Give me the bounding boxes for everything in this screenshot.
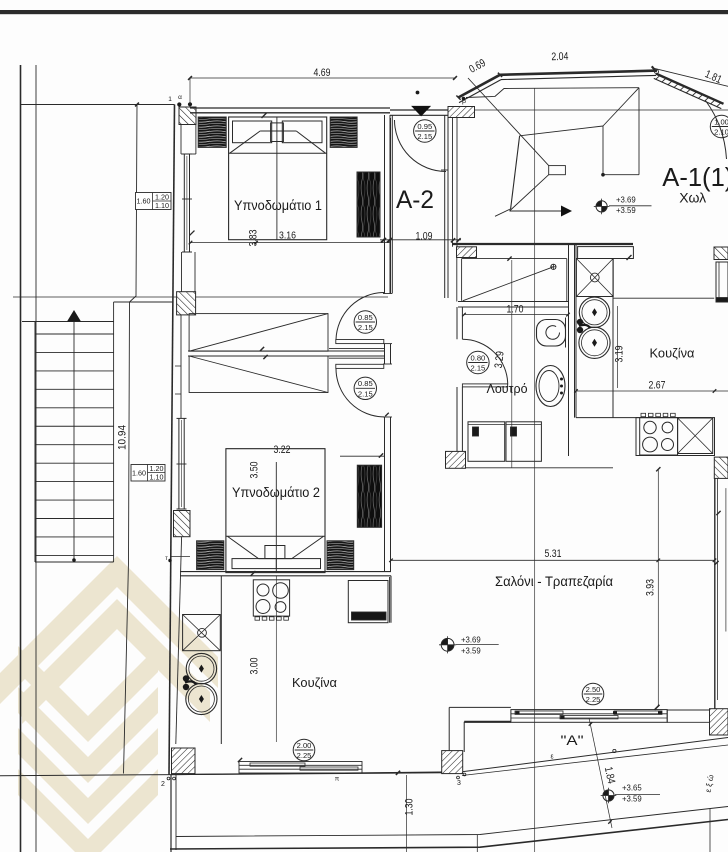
svg-text:3.19: 3.19 <box>614 346 626 363</box>
svg-text:1.09: 1.09 <box>416 231 433 243</box>
svg-text:3.50: 3.50 <box>249 462 261 479</box>
svg-text:+3.65: +3.65 <box>622 784 642 793</box>
svg-text:+3.69: +3.69 <box>616 196 636 205</box>
svg-text:1.10: 1.10 <box>155 201 169 210</box>
svg-text:3.93: 3.93 <box>645 579 657 596</box>
svg-text:α: α <box>178 94 182 101</box>
svg-text:3.22: 3.22 <box>274 444 291 456</box>
svg-text:1.60: 1.60 <box>137 197 151 206</box>
svg-text:+3.59: +3.59 <box>461 647 481 656</box>
svg-text:2.15: 2.15 <box>358 389 373 398</box>
svg-text:1.60: 1.60 <box>132 469 146 478</box>
svg-text:ε: ε <box>550 754 553 761</box>
svg-text:т: т <box>165 556 168 562</box>
svg-text:0.95: 0.95 <box>417 122 432 131</box>
svg-text:"A": "A" <box>561 733 584 748</box>
svg-text:2.50: 2.50 <box>586 685 601 694</box>
svg-text:Υπνοδωμάτιο 1: Υπνοδωμάτιο 1 <box>234 198 322 213</box>
svg-text:3: 3 <box>457 780 461 787</box>
svg-text:+3.69: +3.69 <box>461 636 481 645</box>
svg-text:0.85: 0.85 <box>358 379 373 388</box>
svg-text:Χωλ: Χωλ <box>679 189 706 205</box>
svg-text:2.25: 2.25 <box>297 751 312 760</box>
svg-text:1.70: 1.70 <box>507 304 524 316</box>
svg-text:2.67: 2.67 <box>649 380 666 392</box>
svg-text:1.00: 1.00 <box>714 117 728 126</box>
svg-text:2: 2 <box>161 781 165 788</box>
svg-text:Σαλόνι - Τραπεζαρία: Σαλόνι - Τραπεζαρία <box>495 574 613 589</box>
svg-text:2.00: 2.00 <box>297 741 312 750</box>
svg-text:2.15: 2.15 <box>471 364 486 373</box>
svg-text:0.80: 0.80 <box>471 353 486 362</box>
svg-text:+3.59: +3.59 <box>622 794 642 803</box>
svg-text:1.30: 1.30 <box>404 799 416 816</box>
svg-text:3.83: 3.83 <box>248 230 260 247</box>
svg-text:5.31: 5.31 <box>545 548 562 560</box>
svg-text:+3.59: +3.59 <box>616 206 636 215</box>
svg-text:1: 1 <box>168 96 172 103</box>
svg-text:2.04: 2.04 <box>551 51 568 64</box>
svg-text:1.10: 1.10 <box>150 473 164 482</box>
svg-text:2.15: 2.15 <box>417 132 432 141</box>
svg-text:Λουτρό: Λουτρό <box>487 381 528 396</box>
svg-text:2.10: 2.10 <box>714 128 728 137</box>
svg-text:0.85: 0.85 <box>358 313 373 322</box>
svg-text:3.16: 3.16 <box>279 230 296 242</box>
svg-text:Κουζίνα: Κουζίνα <box>650 346 696 361</box>
svg-text:A-2: A-2 <box>396 186 434 214</box>
svg-text:π: π <box>335 776 340 783</box>
svg-text:3.29: 3.29 <box>493 351 507 369</box>
svg-text:2.25: 2.25 <box>586 695 601 704</box>
svg-text:2.15: 2.15 <box>358 323 373 332</box>
svg-text:A-1(1): A-1(1) <box>662 164 728 192</box>
svg-text:Κουζίνα: Κουζίνα <box>292 675 338 690</box>
svg-text:10.94: 10.94 <box>117 425 129 450</box>
svg-text:3.00: 3.00 <box>249 658 261 675</box>
svg-text:4.69: 4.69 <box>314 67 331 79</box>
